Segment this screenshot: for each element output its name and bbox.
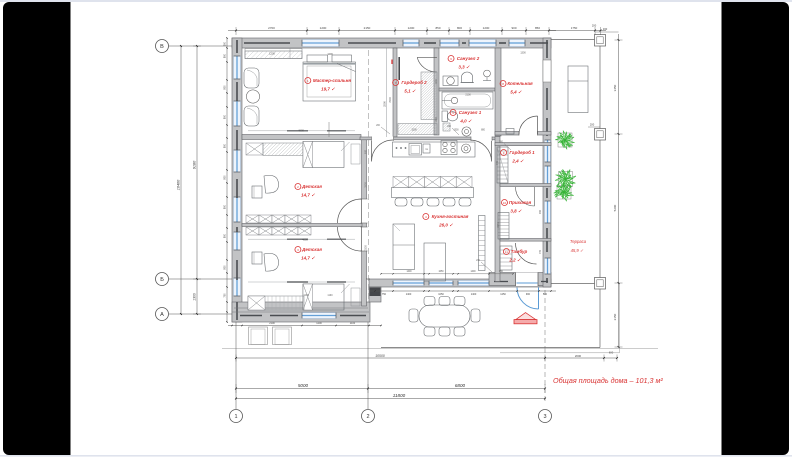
svg-text:14,7 ✓: 14,7 ✓ [301,256,315,261]
svg-text:800: 800 [224,233,227,238]
svg-text:850: 850 [435,26,440,30]
svg-text:Санузел 1: Санузел 1 [459,110,482,115]
svg-text:2100: 2100 [269,322,275,325]
svg-text:Санузел 2: Санузел 2 [457,56,480,61]
svg-text:3,3 ✓: 3,3 ✓ [458,65,470,70]
svg-text:14,7 ✓: 14,7 ✓ [301,193,315,198]
svg-text:тм: тм [425,148,428,151]
svg-text:2500: 2500 [365,182,368,188]
svg-text:5,1 ✓: 5,1 ✓ [404,89,416,94]
svg-text:1200: 1200 [269,52,275,56]
svg-text:800: 800 [224,175,227,180]
svg-text:1300: 1300 [435,79,438,85]
svg-text:1100: 1100 [350,322,356,325]
svg-text:900: 900 [539,209,542,214]
svg-text:Котельная: Котельная [507,81,533,86]
svg-text:500: 500 [543,293,548,296]
svg-text:2000: 2000 [575,354,582,358]
svg-text:1300: 1300 [193,293,197,301]
svg-text:750: 750 [382,293,387,296]
svg-text:4,0 ✓: 4,0 ✓ [459,119,472,124]
svg-text:10400: 10400 [177,179,181,190]
svg-text:45,9 ✓: 45,9 ✓ [571,248,584,253]
svg-text:1200: 1200 [408,26,415,30]
svg-text:11: 11 [505,250,508,254]
svg-text:1200: 1200 [303,294,309,297]
svg-text:750: 750 [224,293,227,298]
svg-text:800: 800 [365,149,368,154]
svg-text:2040: 2040 [497,222,500,228]
svg-text:1050: 1050 [438,271,444,273]
svg-text:2: 2 [366,414,369,420]
svg-text:3: 3 [543,414,546,420]
svg-text:1400: 1400 [470,271,476,273]
svg-text:Детская: Детская [301,184,322,189]
svg-text:850: 850 [535,26,540,30]
svg-text:800: 800 [224,85,227,90]
svg-text:900: 900 [526,293,531,296]
svg-text:6800: 6800 [455,383,466,388]
svg-text:Прихожая: Прихожая [509,200,532,205]
svg-text:3450: 3450 [613,84,617,91]
svg-text:1200: 1200 [320,26,327,30]
svg-text:1200: 1200 [483,26,490,30]
svg-text:5,4 ✓: 5,4 ✓ [510,90,522,95]
svg-text:9180: 9180 [193,160,197,169]
svg-text:600: 600 [609,351,614,355]
svg-text:300: 300 [224,41,227,46]
svg-text:1750: 1750 [571,26,578,30]
svg-text:1400: 1400 [471,293,477,296]
svg-text:2,4 ✓: 2,4 ✓ [511,159,524,164]
svg-text:1400: 1400 [406,293,412,296]
svg-text:1300: 1300 [435,117,438,123]
svg-text:2700: 2700 [268,26,275,30]
svg-text:Мастер-спальня: Мастер-спальня [313,78,351,83]
svg-text:900: 900 [511,26,516,30]
svg-text:Детская: Детская [301,247,322,252]
svg-text:1500: 1500 [411,129,417,132]
svg-text:10: 10 [503,201,507,205]
svg-text:11800: 11800 [393,393,406,398]
svg-text:745: 745 [539,249,542,254]
svg-text:800: 800 [224,265,227,270]
svg-text:1200: 1200 [327,53,333,56]
svg-text:2500: 2500 [389,97,392,103]
svg-text:19,7 ✓: 19,7 ✓ [321,87,335,92]
svg-text:330: 330 [603,27,608,31]
svg-text:800: 800 [366,278,371,281]
svg-text:2100: 2100 [465,93,471,96]
svg-text:800: 800 [224,114,227,119]
svg-text:Гардероб 1: Гардероб 1 [509,149,535,155]
svg-text:5200: 5200 [613,204,617,211]
svg-text:800: 800 [224,204,227,209]
svg-text:2150: 2150 [364,26,371,30]
svg-text:26,0 ✓: 26,0 ✓ [438,223,453,228]
svg-text:2150: 2150 [613,313,617,320]
svg-text:В: В [160,44,164,50]
svg-text:2500: 2500 [383,101,387,107]
svg-text:Кухня-гостиная: Кухня-гостиная [432,214,469,219]
svg-text:1250: 1250 [500,293,506,296]
svg-text:Терраса: Терраса [570,239,587,244]
svg-text:Тамбур: Тамбур [511,248,528,254]
svg-text:800: 800 [224,53,227,58]
svg-text:200: 200 [590,123,595,127]
svg-text:800: 800 [457,26,462,30]
svg-text:А: А [160,312,164,318]
svg-text:2300: 2300 [365,245,368,251]
svg-text:1: 1 [234,414,237,420]
svg-text:1190: 1190 [327,294,333,297]
svg-text:745: 745 [496,160,499,165]
svg-text:1050: 1050 [438,293,444,296]
svg-text:2,2 ✓: 2,2 ✓ [508,258,521,263]
svg-text:3,8 ✓: 3,8 ✓ [510,209,522,214]
svg-text:10500: 10500 [375,354,385,358]
svg-text:Б: Б [160,277,164,283]
svg-text:800: 800 [224,143,227,148]
svg-text:200: 200 [592,24,597,28]
svg-text:1400: 1400 [406,271,412,273]
svg-text:5000: 5000 [298,383,309,388]
svg-text:1300: 1300 [520,52,526,55]
svg-text:Гардероб 2: Гардероб 2 [401,79,427,85]
svg-text:1200: 1200 [316,322,322,325]
svg-text:Общая площадь дома – 101,3 м²: Общая площадь дома – 101,3 м² [553,376,663,385]
